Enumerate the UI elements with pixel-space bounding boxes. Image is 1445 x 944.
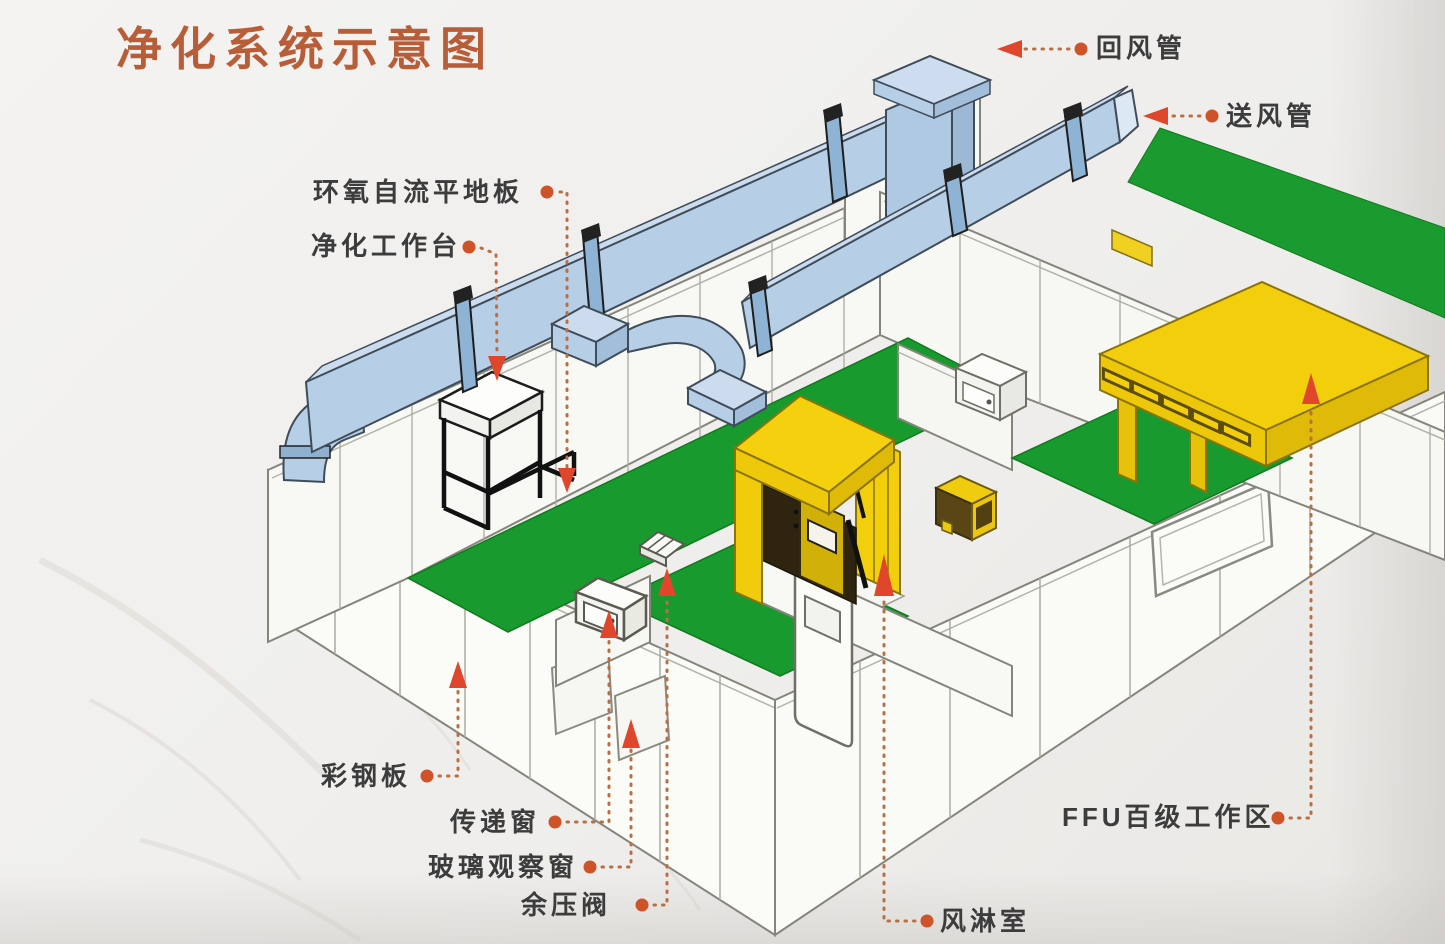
label-return-duct: 回风管 [1096,35,1186,61]
label-pressure-relief-valve: 余压阀 [521,892,611,918]
label-supply-duct: 送风管 [1226,103,1316,129]
label-clean-workbench: 净化工作台 [311,233,461,259]
wall-vent-opening [1112,230,1152,266]
label-ffu-class100-area: FFU百级工作区 [1062,804,1275,830]
label-epoxy-floor: 环氧自流平地板 [313,179,523,205]
label-transfer-window: 传递窗 [450,809,540,835]
label-air-shower-room: 风淋室 [940,908,1030,934]
cleanroom-system-diagram: 净化系统示意图 回风管 送风管 环氧自流平地板 净化工作台 彩钢板 传递窗 玻璃… [0,0,1445,944]
page-title: 净化系统示意图 [116,26,494,72]
label-color-steel-panel: 彩钢板 [321,763,411,789]
label-glass-observation-window: 玻璃观察窗 [428,854,578,880]
arrow-left-return-duct [997,40,1022,58]
arrow-left-supply-duct [1143,107,1168,125]
pass-box-yellow [936,476,996,540]
